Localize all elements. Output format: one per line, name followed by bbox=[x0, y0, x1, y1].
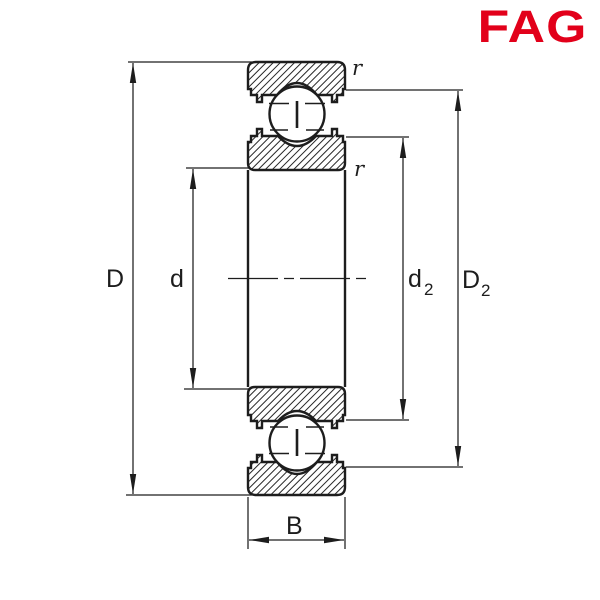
bearing-section-bottom bbox=[248, 387, 345, 495]
label-r-top: r bbox=[352, 56, 364, 80]
fag-logo: FAG bbox=[478, 4, 588, 49]
dimension-B: B bbox=[248, 497, 345, 549]
bearing-technical-drawing: D d d 2 D 2 bbox=[0, 0, 600, 600]
label-r-bottom: r bbox=[354, 157, 366, 181]
label-D: D bbox=[106, 265, 124, 293]
bearing-section-top bbox=[248, 62, 345, 170]
bearing-drawing-page: D d d 2 D 2 bbox=[0, 0, 600, 600]
label-d: d bbox=[170, 265, 184, 293]
label-d2: d bbox=[408, 265, 422, 293]
label-B: B bbox=[286, 512, 303, 540]
label-d2-subscript: 2 bbox=[424, 280, 433, 299]
label-D2-subscript: 2 bbox=[481, 281, 490, 300]
label-D2: D bbox=[462, 266, 480, 294]
